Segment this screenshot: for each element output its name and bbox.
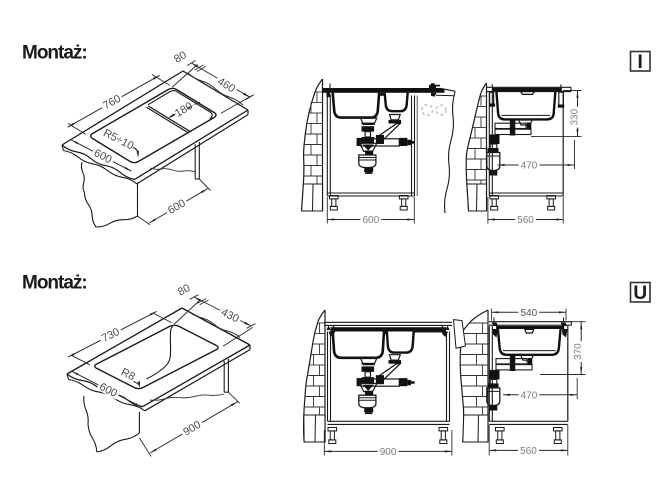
svg-text:470: 470 xyxy=(521,161,538,172)
svg-text:540: 540 xyxy=(520,308,537,319)
svg-text:470: 470 xyxy=(521,390,538,401)
svg-text:Montaż:: Montaż: xyxy=(22,273,87,294)
svg-text:330: 330 xyxy=(570,108,581,125)
svg-text:560: 560 xyxy=(517,215,534,226)
svg-text:560: 560 xyxy=(520,446,537,457)
svg-text:U: U xyxy=(633,283,647,304)
svg-text:I: I xyxy=(638,52,643,73)
svg-text:900: 900 xyxy=(380,447,397,458)
svg-text:600: 600 xyxy=(362,215,379,226)
svg-text:Montaż:: Montaż: xyxy=(22,43,87,64)
svg-text:370: 370 xyxy=(573,343,584,360)
